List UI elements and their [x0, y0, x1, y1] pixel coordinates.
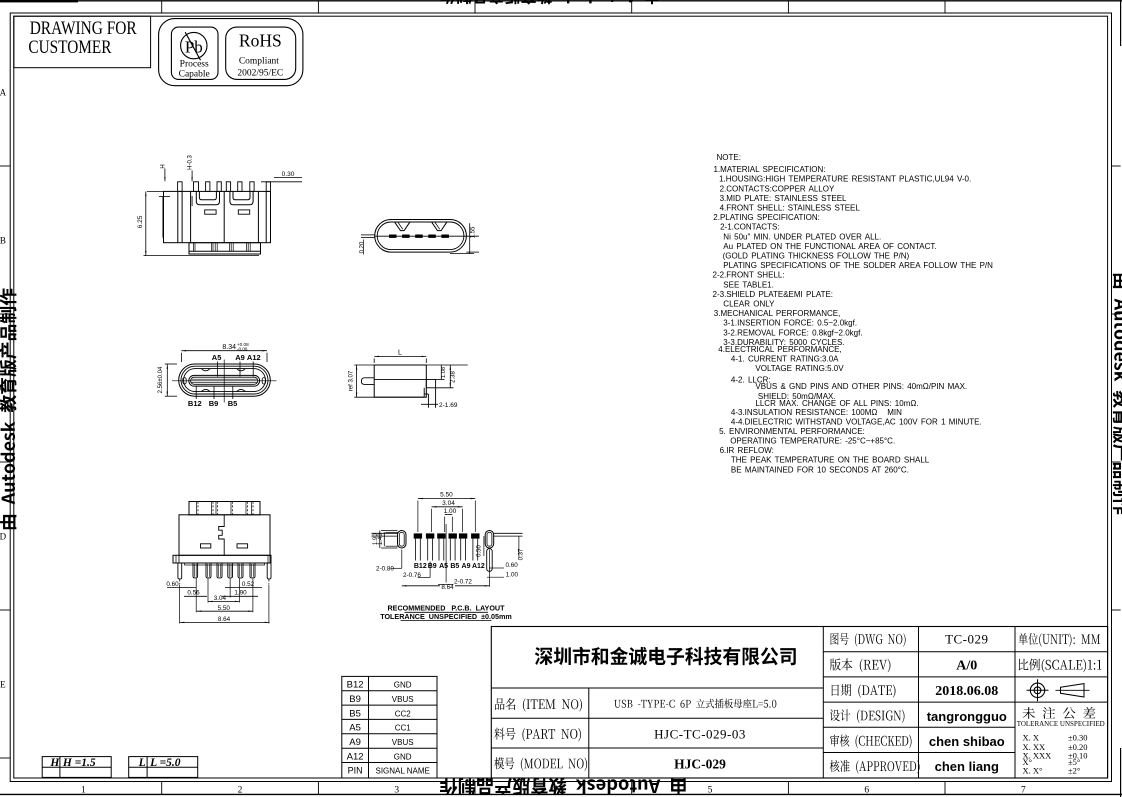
svg-text:1: 1 [81, 785, 86, 795]
svg-text:4-4.DIELECTRIC WITHSTAND VOLTA: 4-4.DIELECTRIC WITHSTAND VOLTAGE,AC 100V… [731, 418, 982, 427]
svg-text:A12: A12 [472, 563, 485, 570]
svg-text:PLATING SPECIFICATIONS OF THE: PLATING SPECIFICATIONS OF THE SOLDER ARE… [723, 261, 993, 270]
svg-text:5. ENVIRONMENTAL PERFORMANCE:: 5. ENVIRONMENTAL PERFORMANCE: [719, 427, 865, 436]
svg-text:B9: B9 [349, 694, 361, 705]
svg-text:L =5.0: L =5.0 [149, 757, 181, 769]
svg-text:CLEAR ONLY: CLEAR ONLY [723, 300, 775, 309]
svg-text:Ni 50u" MIN. UNDER PLATED OVER: Ni 50u" MIN. UNDER PLATED OVER ALL. [723, 232, 881, 241]
svg-text:2-3.SHIELD PLATE&EMI PLATE:: 2-3.SHIELD PLATE&EMI PLATE: [713, 290, 834, 299]
svg-text:B5: B5 [349, 708, 361, 719]
svg-text:2-1.CONTACTS:: 2-1.CONTACTS: [720, 223, 779, 232]
svg-text:Process: Process [180, 59, 209, 69]
svg-text:X. X: X. X [1023, 732, 1040, 742]
svg-text:D: D [0, 532, 7, 542]
svg-text:RoHS: RoHS [239, 31, 282, 51]
svg-text:1.90: 1.90 [234, 590, 247, 597]
svg-text:ref 3.07: ref 3.07 [349, 370, 355, 391]
svg-text:2-0.80: 2-0.80 [376, 565, 394, 572]
svg-text:2-0.76: 2-0.76 [403, 572, 421, 579]
svg-text:THE PEAK TEMPERATURE ON THE BO: THE PEAK TEMPERATURE ON THE BOARD SHALL [731, 456, 930, 465]
svg-text:1.HOUSING:HIGH TEMPERATURE RES: 1.HOUSING:HIGH TEMPERATURE RESISTANT PLA… [719, 175, 971, 184]
svg-text:VBUS & GND PINS AND OTHER PINS: VBUS & GND PINS AND OTHER PINS: 40mΩ/PIN… [755, 382, 967, 391]
svg-text:B12: B12 [347, 680, 364, 691]
svg-text:A5: A5 [439, 563, 448, 570]
svg-text:H =1.5: H =1.5 [62, 757, 96, 769]
svg-text:tangrongguo: tangrongguo [927, 709, 1007, 724]
svg-text:1.MATERIAL SPECIFICATION:: 1.MATERIAL SPECIFICATION: [714, 165, 826, 174]
svg-text:CUSTOMER: CUSTOMER [28, 38, 112, 58]
svg-text:GND: GND [394, 681, 412, 690]
svg-text:5.50: 5.50 [440, 492, 453, 499]
svg-text:H-0.3: H-0.3 [188, 155, 194, 170]
svg-text:2002/95/EC: 2002/95/EC [237, 68, 283, 78]
svg-text:A: A [0, 88, 7, 98]
svg-text:8.64: 8.64 [218, 616, 231, 623]
svg-text:4-1. CURRENT RATING:3.0A: 4-1. CURRENT RATING:3.0A [731, 355, 839, 364]
svg-text:0.37: 0.37 [518, 548, 524, 560]
svg-text:HJC-TC-029-03: HJC-TC-029-03 [654, 727, 746, 742]
svg-text:B5: B5 [450, 563, 459, 570]
svg-text:0.50: 0.50 [477, 545, 483, 557]
svg-text:4-3.INSULATION RESISTANCE: 100: 4-3.INSULATION RESISTANCE: 100MΩ MIN [731, 408, 902, 417]
svg-text:3.MID PLATE: STAINLESS STEEL: 3.MID PLATE: STAINLESS STEEL [720, 194, 847, 203]
svg-text:PIN: PIN [348, 766, 363, 776]
svg-text:2.56±0.04: 2.56±0.04 [158, 366, 164, 393]
svg-text:2-0.72: 2-0.72 [454, 579, 472, 586]
svg-text:B12: B12 [188, 399, 202, 408]
svg-text:HJC-029: HJC-029 [674, 756, 726, 771]
svg-text:3.04: 3.04 [214, 595, 227, 602]
svg-text:A5: A5 [212, 353, 222, 362]
svg-text:1.08: 1.08 [441, 367, 447, 378]
svg-text:A9: A9 [349, 737, 361, 748]
svg-text:3-1.INSERTION FORCE: 0.5~2.0kg: 3-1.INSERTION FORCE: 0.5~2.0kgf. [723, 319, 857, 328]
svg-text:8.64: 8.64 [441, 584, 454, 591]
svg-text:6.IR REFLOW:: 6.IR REFLOW: [720, 446, 774, 455]
svg-text:A9: A9 [235, 353, 245, 362]
svg-text:A12: A12 [247, 353, 261, 362]
svg-text:B: B [0, 236, 6, 246]
svg-text:4.FRONT SHELL: STAINLESS STEEL: 4.FRONT SHELL: STAINLESS STEEL [720, 204, 861, 213]
svg-text:chen shibao: chen shibao [929, 734, 1005, 749]
svg-text:TOLERANCE UNSPECIFIED: TOLERANCE UNSPECIFIED [1017, 720, 1105, 728]
svg-text:LLCR MAX. CHANGE OF ALL PINS:: LLCR MAX. CHANGE OF ALL PINS: 10mΩ. [755, 399, 918, 408]
svg-text:0.20: 0.20 [359, 241, 365, 253]
svg-text:3: 3 [394, 785, 399, 795]
svg-text:TOLERANCE UNSPECIFIED ±0.05m: TOLERANCE UNSPECIFIED ±0.05mm [380, 612, 512, 621]
svg-text:L: L [398, 349, 402, 356]
svg-text:VBUS: VBUS [392, 695, 414, 704]
svg-text:H: H [49, 757, 60, 769]
svg-text:TC-029: TC-029 [945, 632, 988, 647]
svg-text:Capable: Capable [179, 70, 210, 80]
svg-text:BE MAINTAINED FOR 10 SECONDS A: BE MAINTAINED FOR 10 SECONDS AT 260°C. [731, 466, 909, 475]
svg-text:7: 7 [1021, 785, 1026, 795]
svg-text:B12: B12 [414, 563, 427, 570]
svg-text:E: E [0, 680, 6, 690]
svg-text:±0.30: ±0.30 [1068, 732, 1088, 742]
svg-text:SEE TABLE1.: SEE TABLE1. [723, 280, 774, 289]
svg-text:A9: A9 [462, 563, 471, 570]
svg-text:1.55: 1.55 [470, 226, 476, 238]
svg-text:6: 6 [864, 785, 869, 795]
svg-text:5: 5 [708, 785, 713, 795]
svg-text:Pb: Pb [185, 37, 203, 56]
svg-text:chen liang: chen liang [935, 759, 999, 774]
svg-text:CC2: CC2 [395, 709, 412, 718]
svg-text:3-2.REMOVAL FORCE: 0.8kgf~2.0k: 3-2.REMOVAL FORCE: 0.8kgf~2.0kgf. [723, 328, 862, 337]
svg-text:1.40: 1.40 [378, 533, 384, 545]
svg-text:2-1.69: 2-1.69 [439, 402, 458, 409]
svg-text:OPERATING TEMPERATURE: -25°C~+: OPERATING TEMPERATURE: -25°C~+85°C. [730, 437, 895, 446]
svg-text:3.MECHANICAL PERFORMANCE,: 3.MECHANICAL PERFORMANCE, [714, 309, 841, 318]
svg-text:A5: A5 [349, 723, 361, 734]
svg-text:B9: B9 [428, 563, 437, 570]
svg-text:5.50: 5.50 [218, 605, 231, 612]
svg-text:A/0: A/0 [956, 659, 977, 674]
svg-text:VBUS: VBUS [392, 738, 414, 747]
svg-text:0.30: 0.30 [282, 171, 295, 178]
svg-text:2.CONTACTS:COPPER ALLOY: 2.CONTACTS:COPPER ALLOY [720, 184, 835, 193]
svg-text:VOLTAGE RATING:5.0V: VOLTAGE RATING:5.0V [755, 364, 844, 373]
svg-text:A12: A12 [347, 751, 364, 762]
svg-text:0.56: 0.56 [187, 590, 200, 597]
svg-text:8.34: 8.34 [222, 344, 236, 351]
svg-text:NOTE:: NOTE: [717, 153, 741, 162]
svg-text:B5: B5 [228, 399, 238, 408]
svg-text:X. X°: X. X° [1023, 766, 1043, 776]
svg-text:2: 2 [238, 785, 243, 795]
svg-text:0.60: 0.60 [506, 562, 519, 569]
svg-text:SIGNAL NAME: SIGNAL NAME [376, 767, 430, 776]
svg-text:2.38: 2.38 [451, 371, 457, 383]
svg-text:2018.06.08: 2018.06.08 [935, 684, 998, 699]
svg-text:(GOLD PLATING THICKNESS FOLLOW: (GOLD PLATING THICKNESS FOLLOW THE P/N) [723, 252, 910, 261]
svg-text:2.PLATING SPECIFICATION:: 2.PLATING SPECIFICATION: [713, 213, 820, 222]
svg-text:±2°: ±2° [1068, 766, 1080, 776]
svg-text:Compliant: Compliant [239, 57, 279, 67]
svg-text:2-2.FRONT SHELL:: 2-2.FRONT SHELL: [713, 271, 785, 280]
svg-text:0.60: 0.60 [166, 581, 179, 588]
svg-text:DRAWING FOR: DRAWING FOR [30, 19, 138, 39]
svg-text:CC1: CC1 [395, 724, 412, 733]
svg-text:GND: GND [394, 752, 412, 761]
svg-text:B9: B9 [209, 399, 219, 408]
svg-text:-0.06: -0.06 [237, 347, 248, 352]
svg-text:0.52: 0.52 [242, 581, 255, 588]
svg-text:1.00: 1.00 [506, 571, 519, 578]
svg-text:1.00: 1.00 [444, 508, 457, 515]
svg-text:Au PLATED ON THE FUNCTIONAL AR: Au PLATED ON THE FUNCTIONAL AREA OF CONT… [723, 242, 936, 251]
svg-text:6.25: 6.25 [137, 215, 144, 228]
svg-text:4.ELECTRICAL PERFORMANCE,: 4.ELECTRICAL PERFORMANCE, [718, 345, 841, 354]
svg-text:3.04: 3.04 [442, 500, 455, 507]
svg-text:H: H [161, 164, 167, 168]
svg-text:L: L [138, 757, 146, 769]
